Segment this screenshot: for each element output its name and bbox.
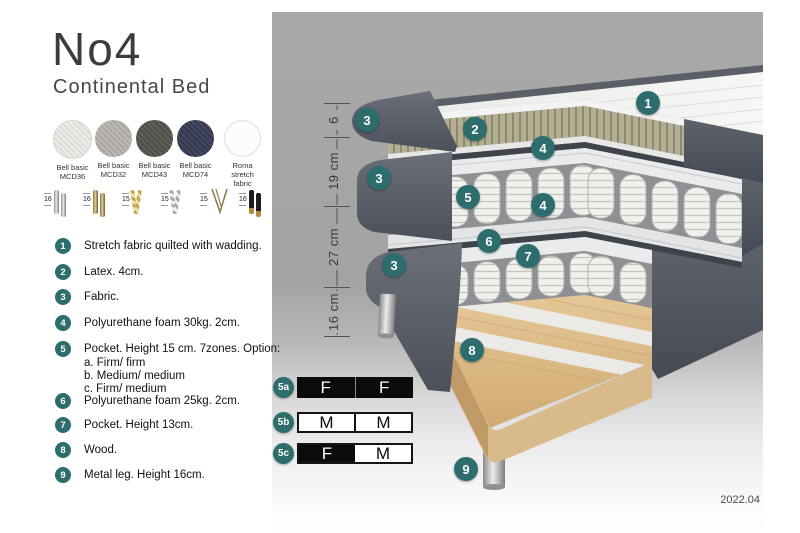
page-subtitle: Continental Bed xyxy=(53,76,210,99)
legend-badge: 5 xyxy=(55,341,71,357)
fabric-swatch-icon xyxy=(177,120,214,157)
dimension-leg-height: 16 cm xyxy=(326,280,342,344)
pocket-firmness-options: a. Firm/ firm b. Medium/ medium c. Firm/… xyxy=(84,358,280,396)
option-5a-badge: 5a xyxy=(273,377,294,398)
firmness-cell: M xyxy=(356,414,411,431)
cylinder-silver-leg-icon xyxy=(54,184,66,214)
swatch-bell-basic-mcd74: Bell basicMCD74 xyxy=(175,120,216,188)
legend-item-1: 1 Stretch fabric quilted with wadding. xyxy=(55,238,290,254)
firmness-bar-5b: M M xyxy=(297,412,413,433)
fabric-swatches: Bell basicMCD36 Bell basicMCD32 Bell bas… xyxy=(52,120,263,188)
firmness-cell: M xyxy=(299,414,356,431)
callout-3-fabric-middle: 3 xyxy=(367,166,391,190)
legend-badge: 3 xyxy=(55,289,71,305)
callout-1-stretch-fabric: 1 xyxy=(636,91,660,115)
callout-6-foam-box: 6 xyxy=(477,229,501,253)
option-5c-badge: 5c xyxy=(273,443,294,464)
dimension-box-height: 27 cm xyxy=(326,215,342,279)
firmness-cell: F xyxy=(299,445,355,462)
legend-item-5: 5 Pocket. Height 15 cm. 7zones. Option: … xyxy=(55,341,290,395)
page-title: No4 xyxy=(52,22,142,76)
callout-8-wood: 8 xyxy=(460,338,484,362)
option-5b-badge: 5b xyxy=(273,412,294,433)
twisted-silver-leg-icon xyxy=(171,184,179,214)
leg-options: 16 16 15 15 15 16 xyxy=(44,184,275,214)
legend-badge: 9 xyxy=(55,467,71,483)
cylinder-black-leg-icon xyxy=(249,184,261,214)
callout-4-foam-lower: 4 xyxy=(531,193,555,217)
callout-3-fabric-bottom: 3 xyxy=(382,253,406,277)
firmness-bar-5a: F F xyxy=(297,377,413,398)
leg-option-twisted-silver: 15 xyxy=(161,184,197,214)
legend-badge: 6 xyxy=(55,393,71,409)
swatch-roma-stretch: Romastretch fabric xyxy=(222,120,263,188)
swatch-bell-basic-mcd43: Bell basicMCD43 xyxy=(134,120,175,188)
infographic-page: 6 19 cm 27 cm 16 cm 1 2 3 3 3 4 4 5 6 7 … xyxy=(0,0,800,533)
legend-badge: 7 xyxy=(55,417,71,433)
callout-4-foam-upper: 4 xyxy=(531,136,555,160)
legend-item-7: 7 Pocket. Height 13cm. xyxy=(55,417,290,433)
twisted-gold-leg-icon xyxy=(132,184,140,214)
legend-item-9: 9 Metal leg. Height 16cm. xyxy=(55,467,290,483)
callout-2-latex: 2 xyxy=(463,117,487,141)
leg-option-twisted-gold: 15 xyxy=(122,184,158,214)
fabric-swatch-icon xyxy=(224,120,261,157)
leg-option-cylinder-black: 16 xyxy=(239,184,275,214)
version-label: 2022.04 xyxy=(690,494,760,506)
callout-5-pocket-mattress: 5 xyxy=(456,185,480,209)
swatch-bell-basic-mcd36: Bell basicMCD36 xyxy=(52,120,93,188)
callout-9-metal-leg: 9 xyxy=(454,457,478,481)
leg-option-hairpin: 15 xyxy=(200,184,236,214)
firmness-cell: F xyxy=(297,377,356,398)
swatch-bell-basic-mcd32: Bell basicMCD32 xyxy=(93,120,134,188)
fabric-swatch-icon xyxy=(136,120,173,157)
firmness-cell: M xyxy=(355,445,411,462)
legend-badge: 8 xyxy=(55,442,71,458)
firmness-bar-5c: F M xyxy=(297,443,413,464)
legend-badge: 2 xyxy=(55,264,71,280)
hairpin-leg-icon xyxy=(210,184,229,214)
leg-option-cylinder-silver: 16 xyxy=(44,184,80,214)
legend-item-6: 6 Polyurethane foam 25kg. 2cm. xyxy=(55,393,290,409)
leg-option-cylinder-brass: 16 xyxy=(83,184,119,214)
legend-item-4: 4 Polyurethane foam 30kg. 2cm. xyxy=(55,315,290,331)
callout-3-fabric-top: 3 xyxy=(355,108,379,132)
fabric-swatch-icon xyxy=(95,120,132,157)
callout-7-pocket-box: 7 xyxy=(516,244,540,268)
cylinder-brass-leg-icon xyxy=(93,184,105,214)
fabric-swatch-icon xyxy=(53,120,92,159)
legend-item-2: 2 Latex. 4cm. xyxy=(55,264,290,280)
legend-item-8: 8 Wood. xyxy=(55,442,290,458)
legend-badge: 1 xyxy=(55,238,71,254)
firmness-cell: F xyxy=(356,377,414,398)
legend-badge: 4 xyxy=(55,315,71,331)
legend-item-3: 3 Fabric. xyxy=(55,289,290,305)
dimension-mattress-height: 19 cm xyxy=(326,139,342,203)
